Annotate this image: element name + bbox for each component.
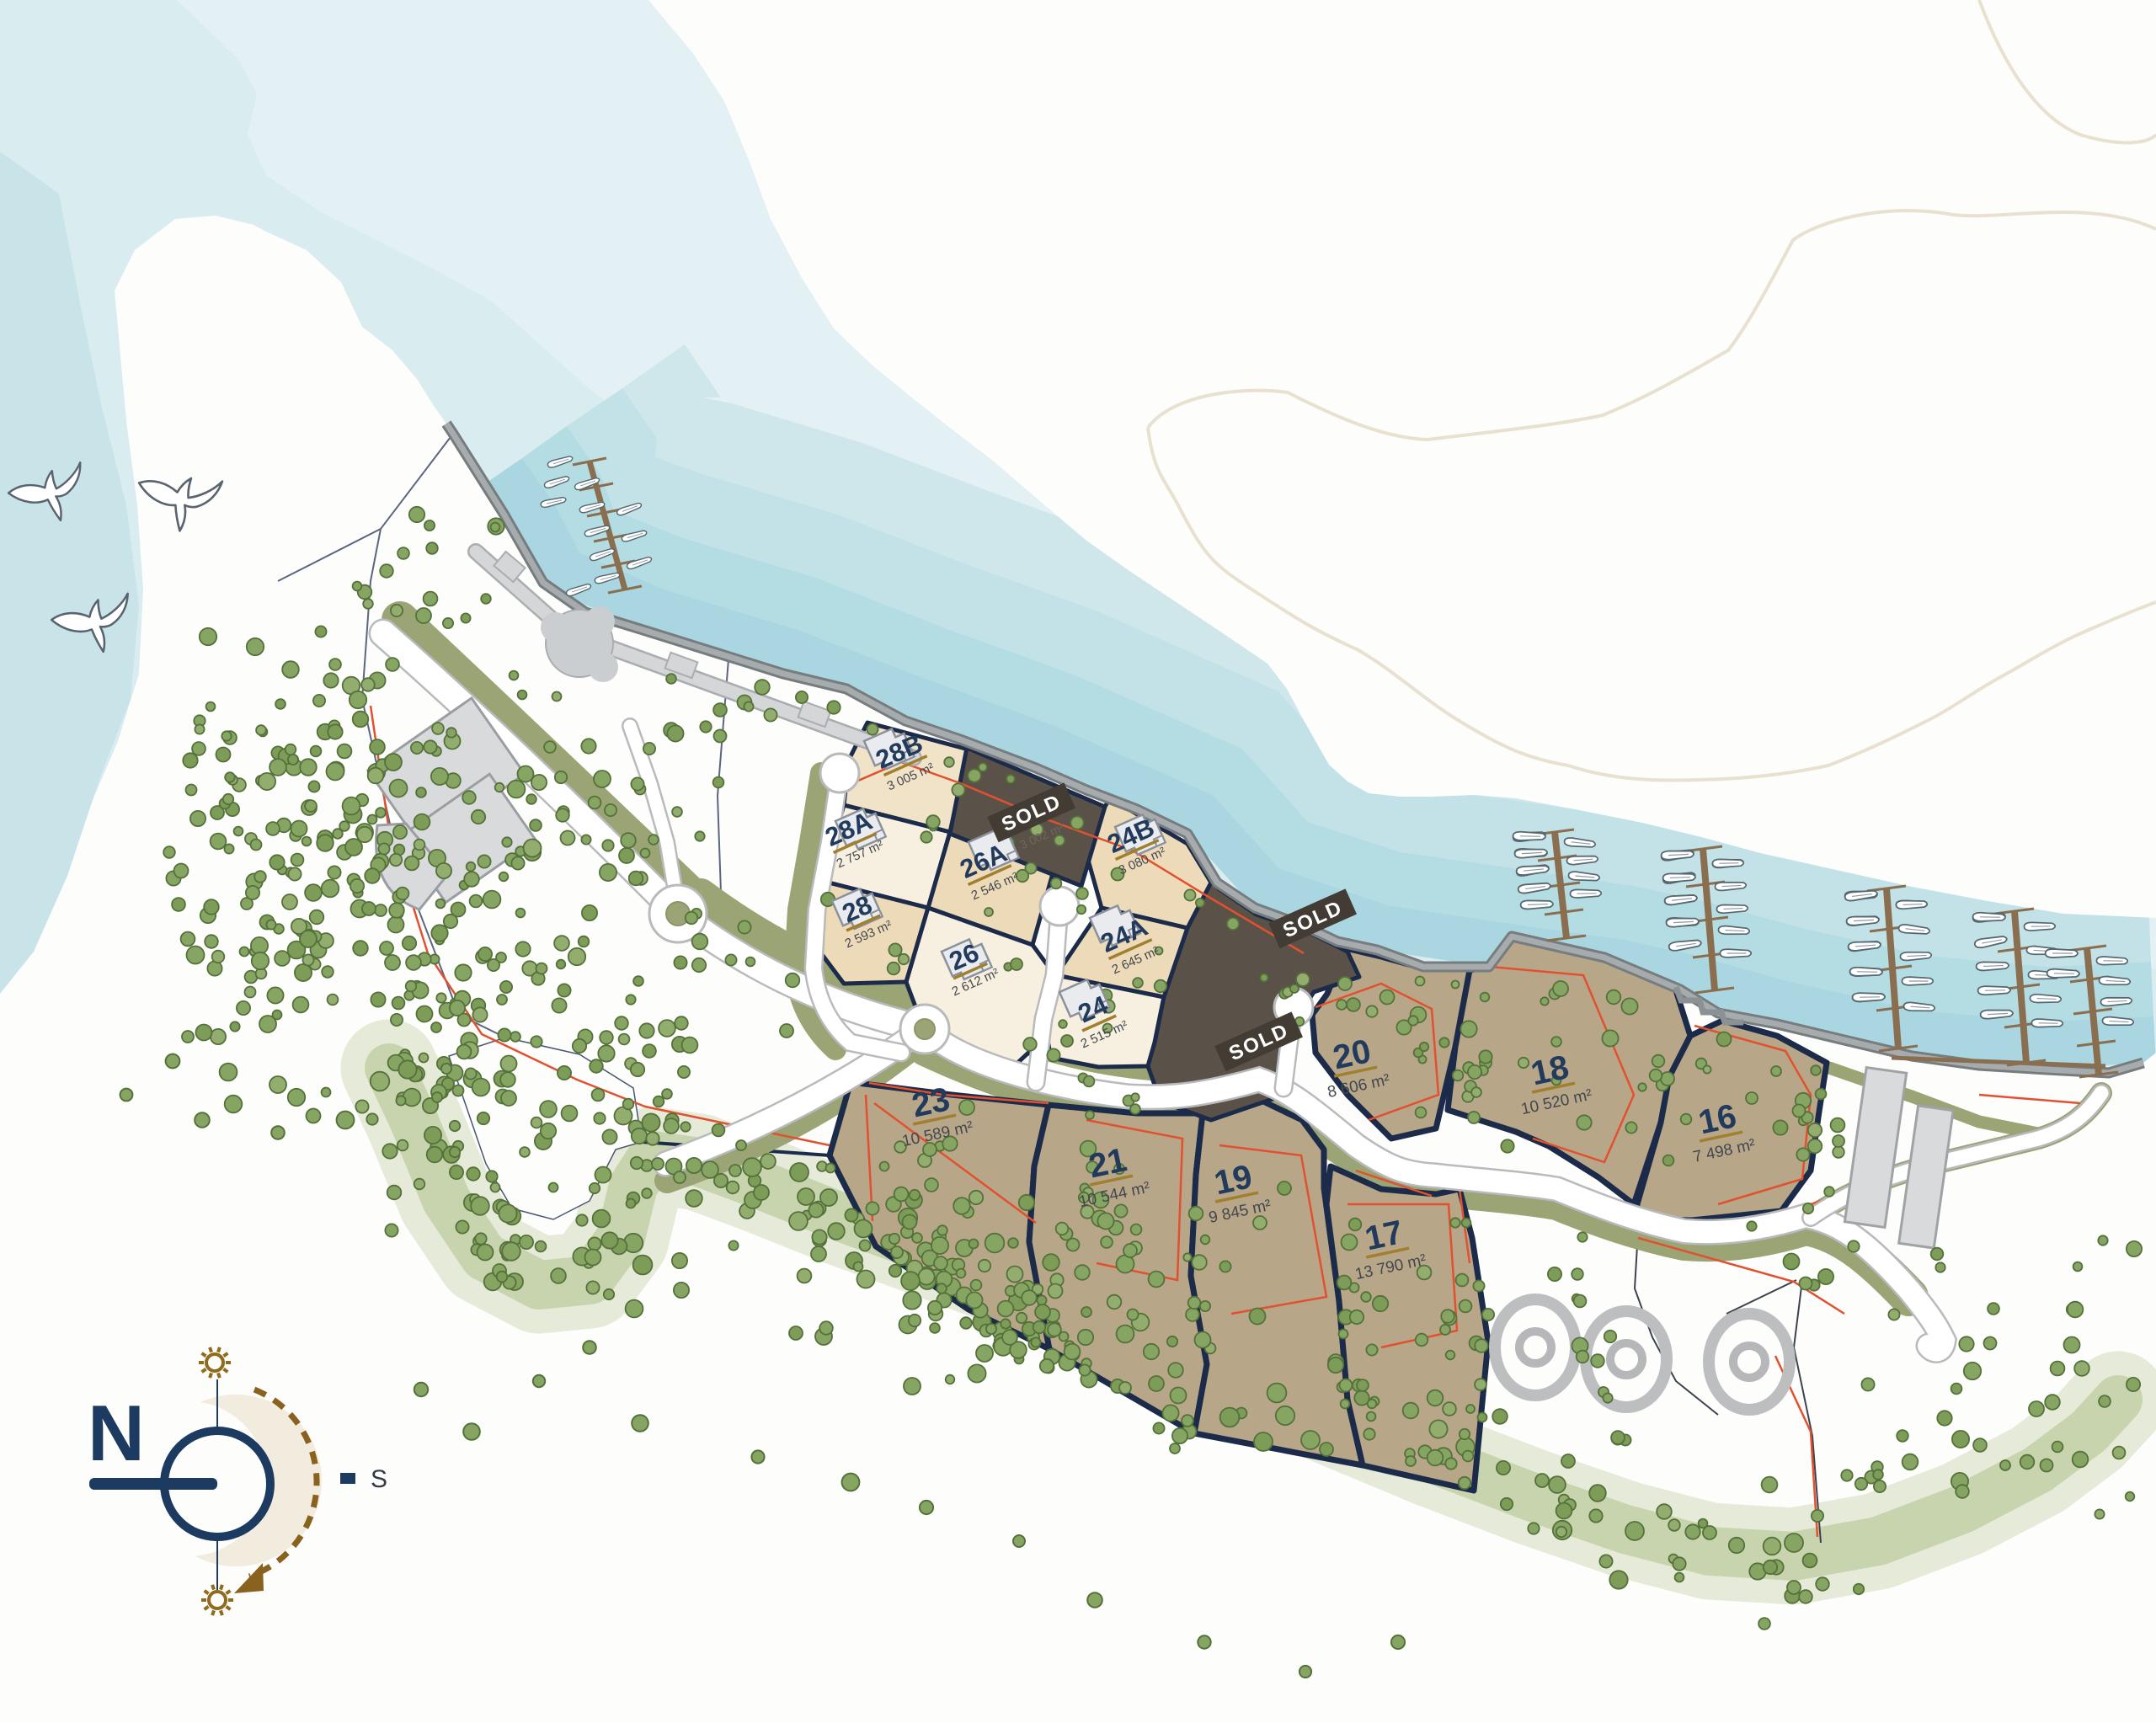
svg-text:S: S: [371, 1465, 387, 1493]
svg-text:N: N: [88, 1389, 145, 1477]
